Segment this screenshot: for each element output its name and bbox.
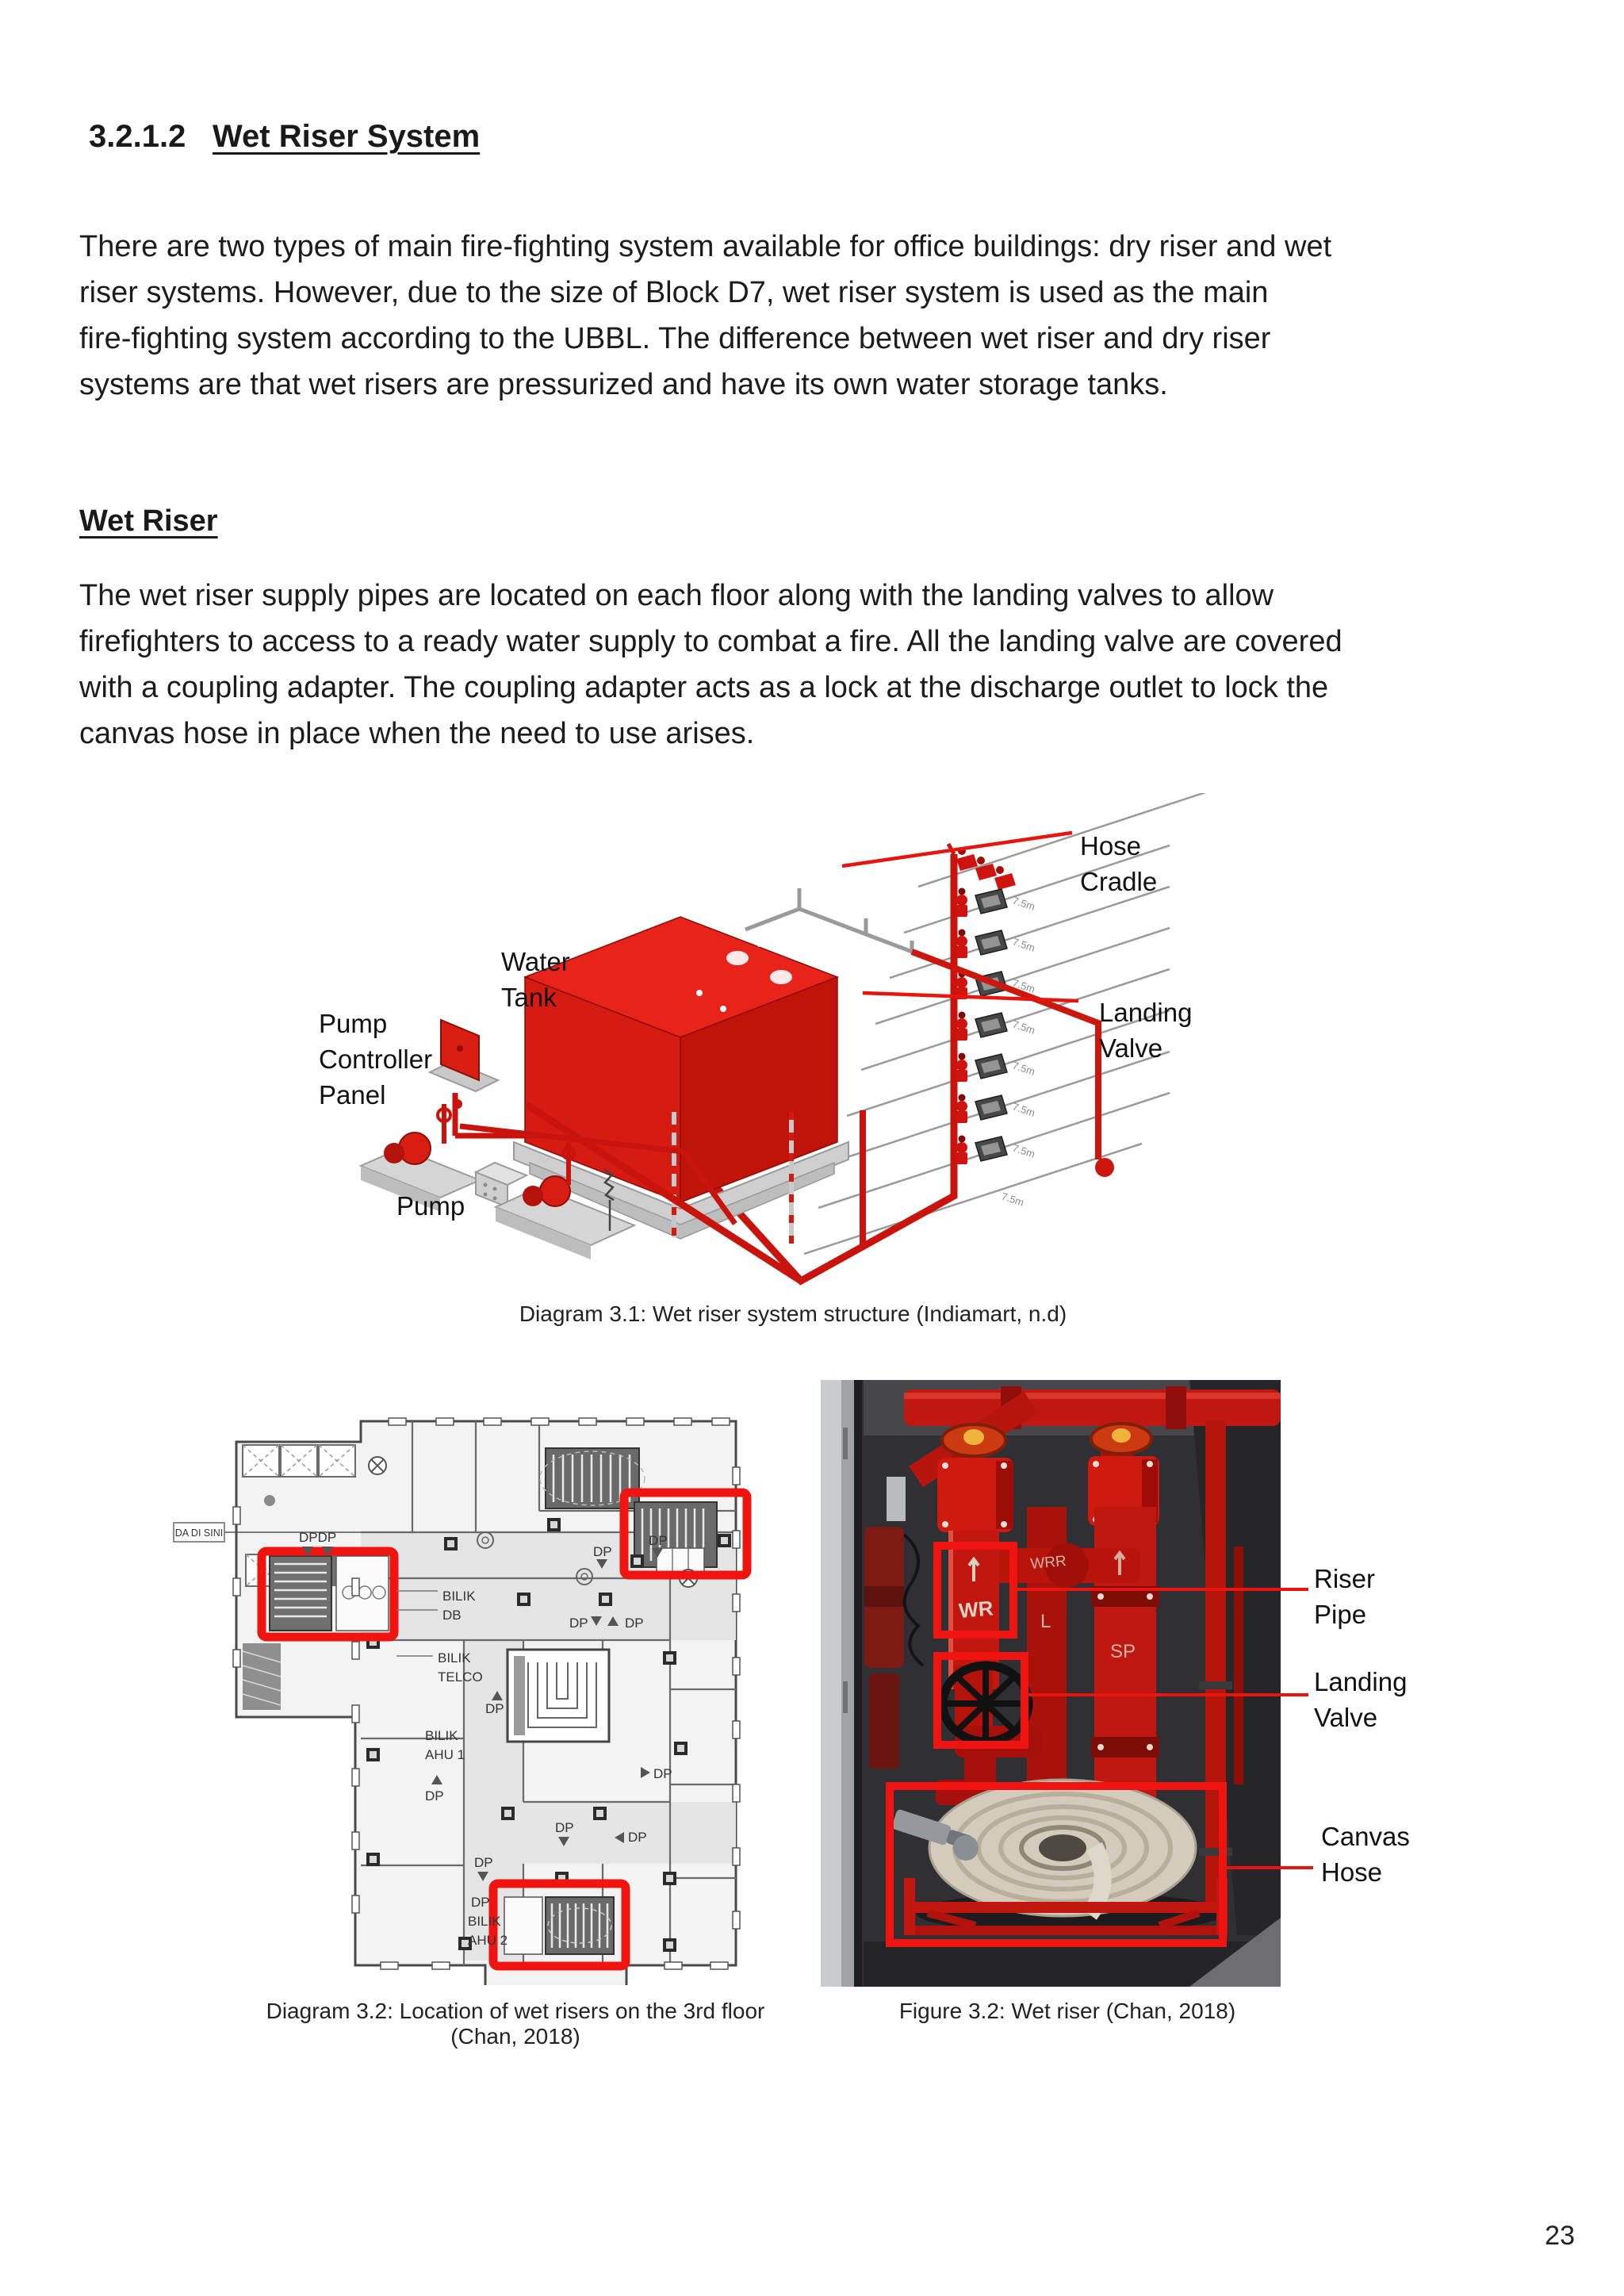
caption-line: (Chan, 2018): [170, 2024, 860, 2049]
label-riser-pipe: Riser Pipe: [1314, 1561, 1375, 1632]
paragraph-line: firefighters to access to a ready water …: [79, 619, 1342, 665]
bilik-label: BILIK: [425, 1728, 458, 1743]
label-canvas-hose: Canvas Hose: [1321, 1819, 1410, 1890]
caption-line: Diagram 3.2: Location of wet risers on t…: [170, 1999, 860, 2024]
dp-label: DP: [625, 1616, 644, 1631]
label-line: Riser: [1314, 1561, 1375, 1596]
leader-canvas-hose: [1223, 1866, 1313, 1869]
figure32-caption: Figure 3.2: Wet riser (Chan, 2018): [821, 1999, 1314, 2024]
label-pump-controller-panel: Pump Controller Panel: [319, 1006, 432, 1113]
bilik-label: BILIK: [438, 1650, 471, 1665]
label-line: Panel: [319, 1077, 432, 1113]
wr-marking: WR: [958, 1596, 994, 1623]
dp-label: DP: [593, 1544, 612, 1559]
subheading-wet-riser: Wet Riser: [79, 504, 218, 539]
label-water-tank: Water Tank: [501, 944, 570, 1015]
floor-height-text: 7.5m: [1000, 1190, 1025, 1209]
dp-label: DP: [555, 1820, 574, 1835]
label-line: Landing: [1314, 1664, 1407, 1700]
dp-label: DP: [653, 1766, 672, 1781]
label-line: Water: [501, 944, 570, 979]
paragraph-line: There are two types of main fire-fightin…: [79, 224, 1331, 270]
db-label: DB: [442, 1608, 462, 1623]
you-are-here-text: DA DI SINI: [175, 1527, 223, 1539]
floor-height-text: 7.5m: [1011, 1101, 1036, 1119]
paragraph-line: with a coupling adapter. The coupling ad…: [79, 665, 1342, 711]
diagram31-caption: Diagram 3.1: Wet riser system structure …: [254, 1301, 1332, 1327]
l-marking: L: [1040, 1611, 1051, 1632]
document-page: 3.2.1.2Wet Riser System There are two ty…: [0, 0, 1624, 2296]
paragraph-line: The wet riser supply pipes are located o…: [79, 573, 1342, 619]
page-number: 23: [1545, 2221, 1575, 2252]
landing-valve-icons: [956, 888, 1007, 1165]
floor-height-text: 7.5m: [1011, 936, 1036, 954]
label-landing-valve: Landing Valve: [1099, 995, 1192, 1066]
wet-riser-paragraph: The wet riser supply pipes are located o…: [79, 573, 1342, 757]
dp-label: DP: [474, 1855, 493, 1870]
label-line: Tank: [501, 979, 570, 1015]
dp-label: DP: [471, 1895, 490, 1910]
cabinet-door-frame: [821, 1380, 862, 1987]
label-line: Pipe: [1314, 1596, 1375, 1632]
paragraph-line: riser systems. However, due to the size …: [79, 270, 1331, 316]
sp-marking: SP: [1110, 1641, 1136, 1662]
floor-height-text: 7.5m: [1011, 1018, 1036, 1037]
leader-riser-pipe: [1013, 1588, 1308, 1591]
dp-label: DP: [649, 1533, 668, 1548]
label-photo-landing-valve: Landing Valve: [1314, 1664, 1407, 1735]
label-line: Controller: [319, 1041, 432, 1077]
dp-label: DP: [569, 1616, 588, 1631]
dp-label: DP: [628, 1830, 647, 1845]
label-pump: Pump: [396, 1188, 465, 1224]
ahu1-label: AHU 1: [425, 1747, 465, 1762]
label-line: Hose: [1080, 828, 1157, 864]
dp-label: DP: [485, 1701, 504, 1716]
floor-height-text: 7.5m: [1011, 895, 1036, 913]
floor-height-text: 7.5m: [1011, 1142, 1036, 1160]
wet-riser-photo: WR WRR L SP: [821, 1380, 1281, 1987]
bilik-label: BILIK: [442, 1589, 476, 1604]
floor-plan: DA DI SINI DPDP BILIK DB BILIK TELCO DP …: [170, 1378, 805, 1985]
dp-label: DP: [425, 1788, 444, 1803]
section-title: Wet Riser System: [213, 119, 480, 154]
section-number: 3.2.1.2: [89, 119, 213, 155]
floor-height-text: 7.5m: [1011, 1060, 1036, 1078]
bilik-label: BILIK: [468, 1914, 501, 1929]
dp-pair-label: DPDP: [299, 1530, 336, 1545]
pump-controller-panel-graphic: [430, 1020, 498, 1091]
paragraph-line: canvas hose in place when the need to us…: [79, 711, 1342, 757]
label-line: Cradle: [1080, 864, 1157, 899]
label-line: Hose: [1321, 1854, 1410, 1890]
diagram32-caption: Diagram 3.2: Location of wet risers on t…: [170, 1999, 860, 2049]
label-hose-cradle: Hose Cradle: [1080, 828, 1157, 899]
paragraph-line: fire-fighting system according to the UB…: [79, 316, 1331, 362]
section-heading: 3.2.1.2Wet Riser System: [89, 119, 480, 155]
leader-landing-valve: [1025, 1693, 1308, 1696]
label-line: Pump: [319, 1006, 432, 1041]
hose-cradle-icons: [956, 847, 1016, 890]
telco-label: TELCO: [438, 1669, 483, 1685]
label-line: Valve: [1314, 1700, 1407, 1735]
label-line: Landing: [1099, 995, 1192, 1030]
wrr-marking: WRR: [1030, 1553, 1067, 1573]
ahu2-label: AHU 2: [468, 1933, 507, 1948]
intro-paragraph: There are two types of main fire-fightin…: [79, 224, 1331, 408]
label-line: Valve: [1099, 1030, 1192, 1066]
label-line: Canvas: [1321, 1819, 1410, 1854]
paragraph-line: systems are that wet risers are pressuri…: [79, 362, 1331, 408]
